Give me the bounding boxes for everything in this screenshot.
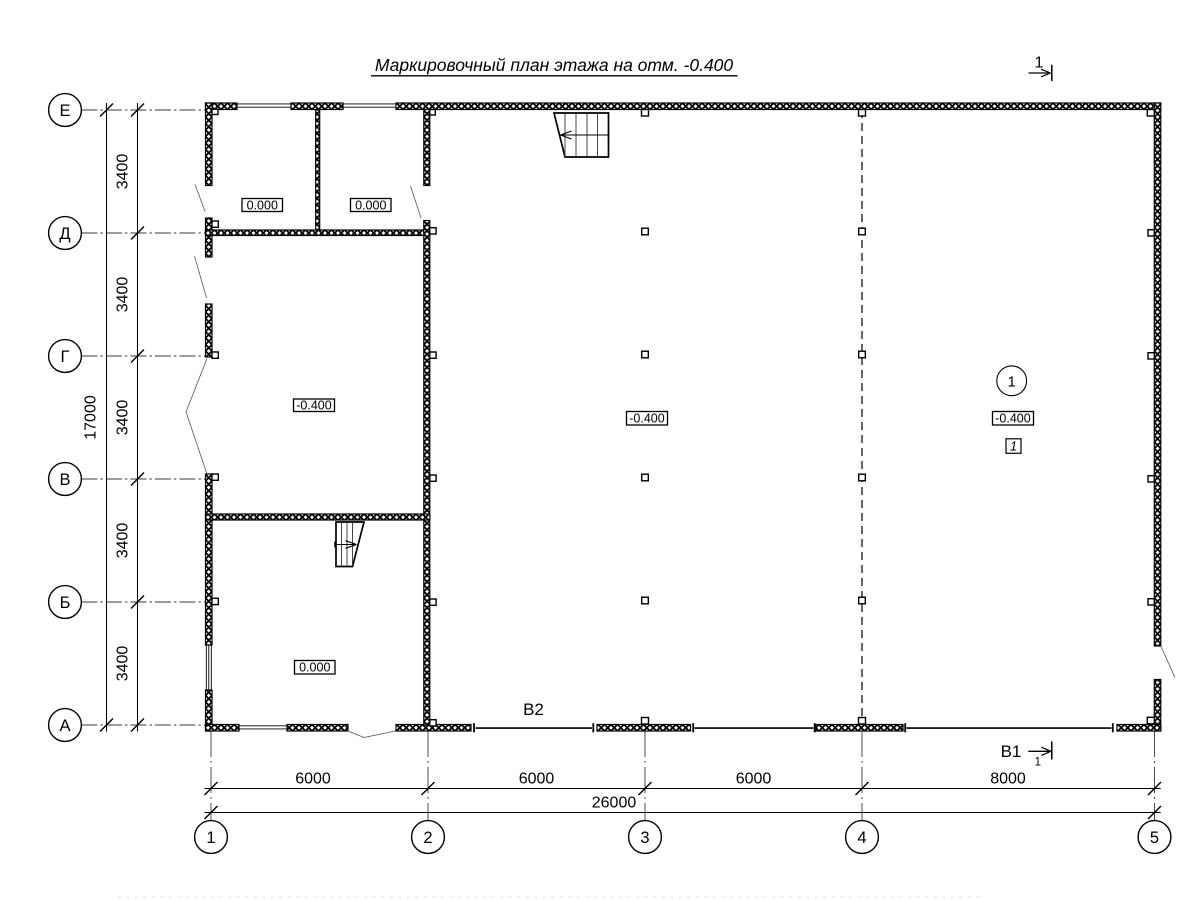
svg-text:6000: 6000 bbox=[736, 771, 772, 788]
svg-text:26000: 26000 bbox=[592, 795, 637, 812]
svg-text:1: 1 bbox=[1035, 757, 1041, 769]
svg-text:0.000: 0.000 bbox=[247, 198, 278, 212]
svg-text:Г: Г bbox=[61, 348, 70, 366]
svg-text:1: 1 bbox=[1035, 55, 1044, 72]
svg-text:Е: Е bbox=[59, 102, 70, 120]
svg-text:-0.400: -0.400 bbox=[629, 412, 664, 426]
svg-text:3400: 3400 bbox=[115, 646, 132, 682]
svg-text:3: 3 bbox=[640, 829, 649, 847]
svg-text:6000: 6000 bbox=[519, 771, 555, 788]
svg-text:6000: 6000 bbox=[295, 771, 331, 788]
svg-text:17000: 17000 bbox=[83, 395, 100, 440]
svg-text:3400: 3400 bbox=[115, 400, 132, 436]
svg-text:В1: В1 bbox=[1001, 742, 1022, 761]
svg-text:0.000: 0.000 bbox=[355, 198, 386, 212]
svg-text:4: 4 bbox=[857, 829, 866, 847]
svg-text:Б: Б bbox=[60, 594, 71, 612]
svg-text:8000: 8000 bbox=[990, 771, 1026, 788]
svg-text:1: 1 bbox=[1010, 439, 1017, 454]
svg-text:3400: 3400 bbox=[115, 277, 132, 313]
svg-text:3400: 3400 bbox=[115, 154, 132, 190]
svg-text:0.000: 0.000 bbox=[299, 661, 330, 675]
svg-text:3400: 3400 bbox=[115, 523, 132, 559]
svg-text:А: А bbox=[59, 717, 70, 735]
svg-text:Д: Д bbox=[59, 225, 70, 243]
svg-text:-0.400: -0.400 bbox=[995, 412, 1030, 426]
svg-text:1: 1 bbox=[206, 829, 215, 847]
svg-text:5: 5 bbox=[1150, 829, 1159, 847]
svg-text:1: 1 bbox=[1008, 373, 1016, 390]
svg-text:2: 2 bbox=[423, 829, 432, 847]
svg-text:Маркировочный план этажа на от: Маркировочный план этажа на отм. -0.400 bbox=[375, 55, 734, 75]
svg-text:-0.400: -0.400 bbox=[296, 399, 331, 413]
svg-text:В: В bbox=[59, 471, 70, 489]
svg-text:В2: В2 bbox=[523, 700, 544, 719]
